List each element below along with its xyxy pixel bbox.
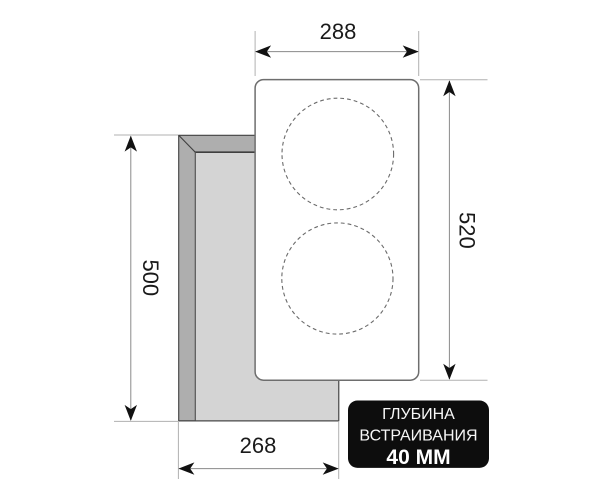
svg-text:ВСТРАИВАНИЯ: ВСТРАИВАНИЯ [359,427,477,444]
svg-text:268: 268 [240,433,277,458]
svg-text:ГЛУБИНА: ГЛУБИНА [382,406,455,423]
svg-text:520: 520 [455,212,480,249]
svg-text:500: 500 [138,259,163,296]
svg-text:288: 288 [320,19,357,44]
svg-text:40 ММ: 40 ММ [386,446,450,469]
